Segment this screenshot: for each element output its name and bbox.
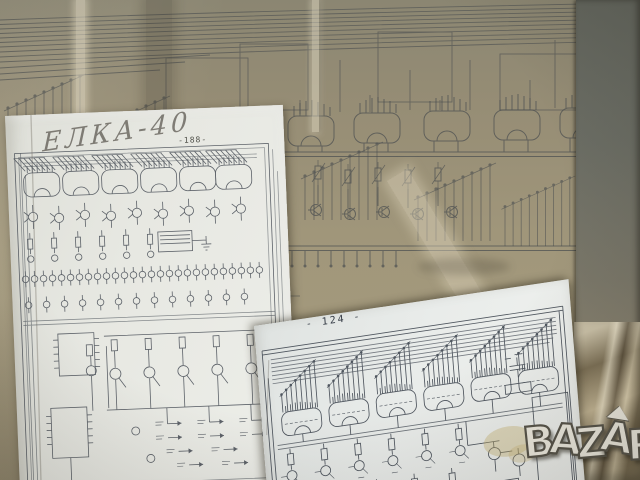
- sheet1-schematic-drawing: [5, 105, 298, 480]
- smudge-stain-2: [418, 258, 510, 275]
- bazar-watermark: B A Z A R: [526, 421, 640, 479]
- watermark-letter: R: [626, 423, 640, 467]
- page-number-188: -188-: [178, 135, 207, 145]
- schematic-sheet-1: ЕЛКА-40 -188-: [5, 105, 298, 480]
- fold-crease-dark: [146, 0, 172, 118]
- photo-of-schematics: ЕЛКА-40 -188-: [0, 0, 640, 480]
- blueprint-folded-right-panel: [576, 0, 640, 360]
- fold-crease-light-2: [312, 0, 319, 132]
